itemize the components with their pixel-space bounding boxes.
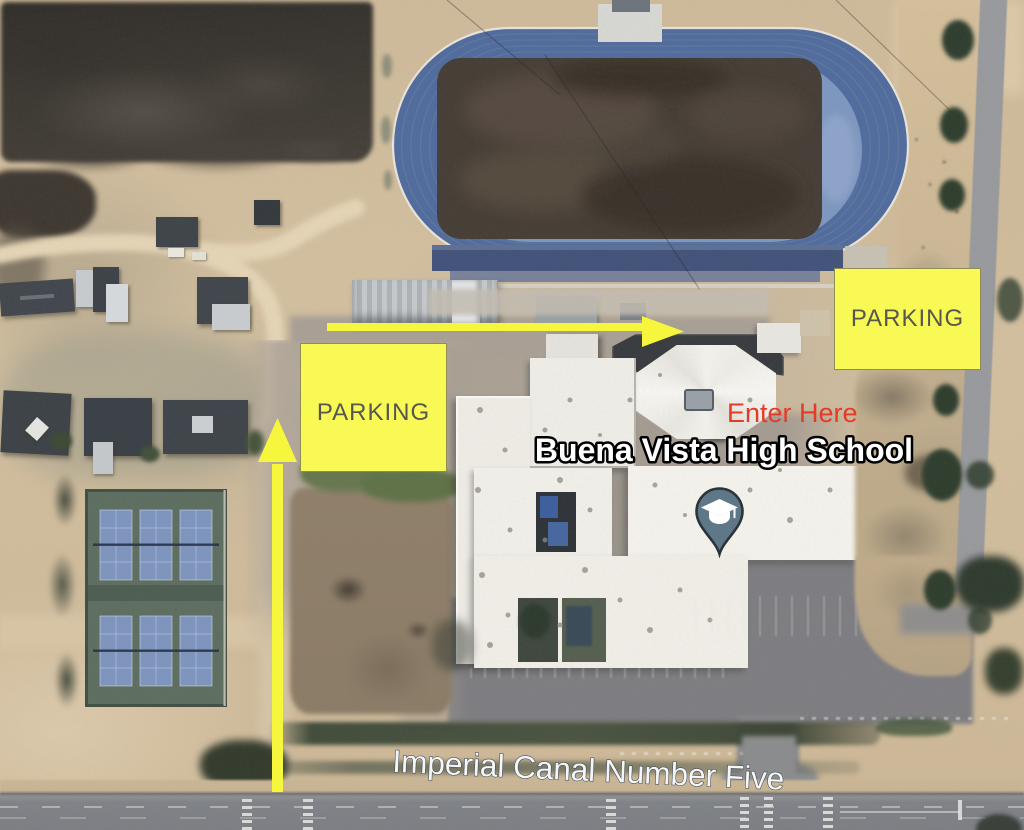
svg-text:Imperial Canal Number Five: Imperial Canal Number Five xyxy=(392,743,785,797)
svg-text:Buena Vista High School: Buena Vista High School xyxy=(535,432,913,468)
